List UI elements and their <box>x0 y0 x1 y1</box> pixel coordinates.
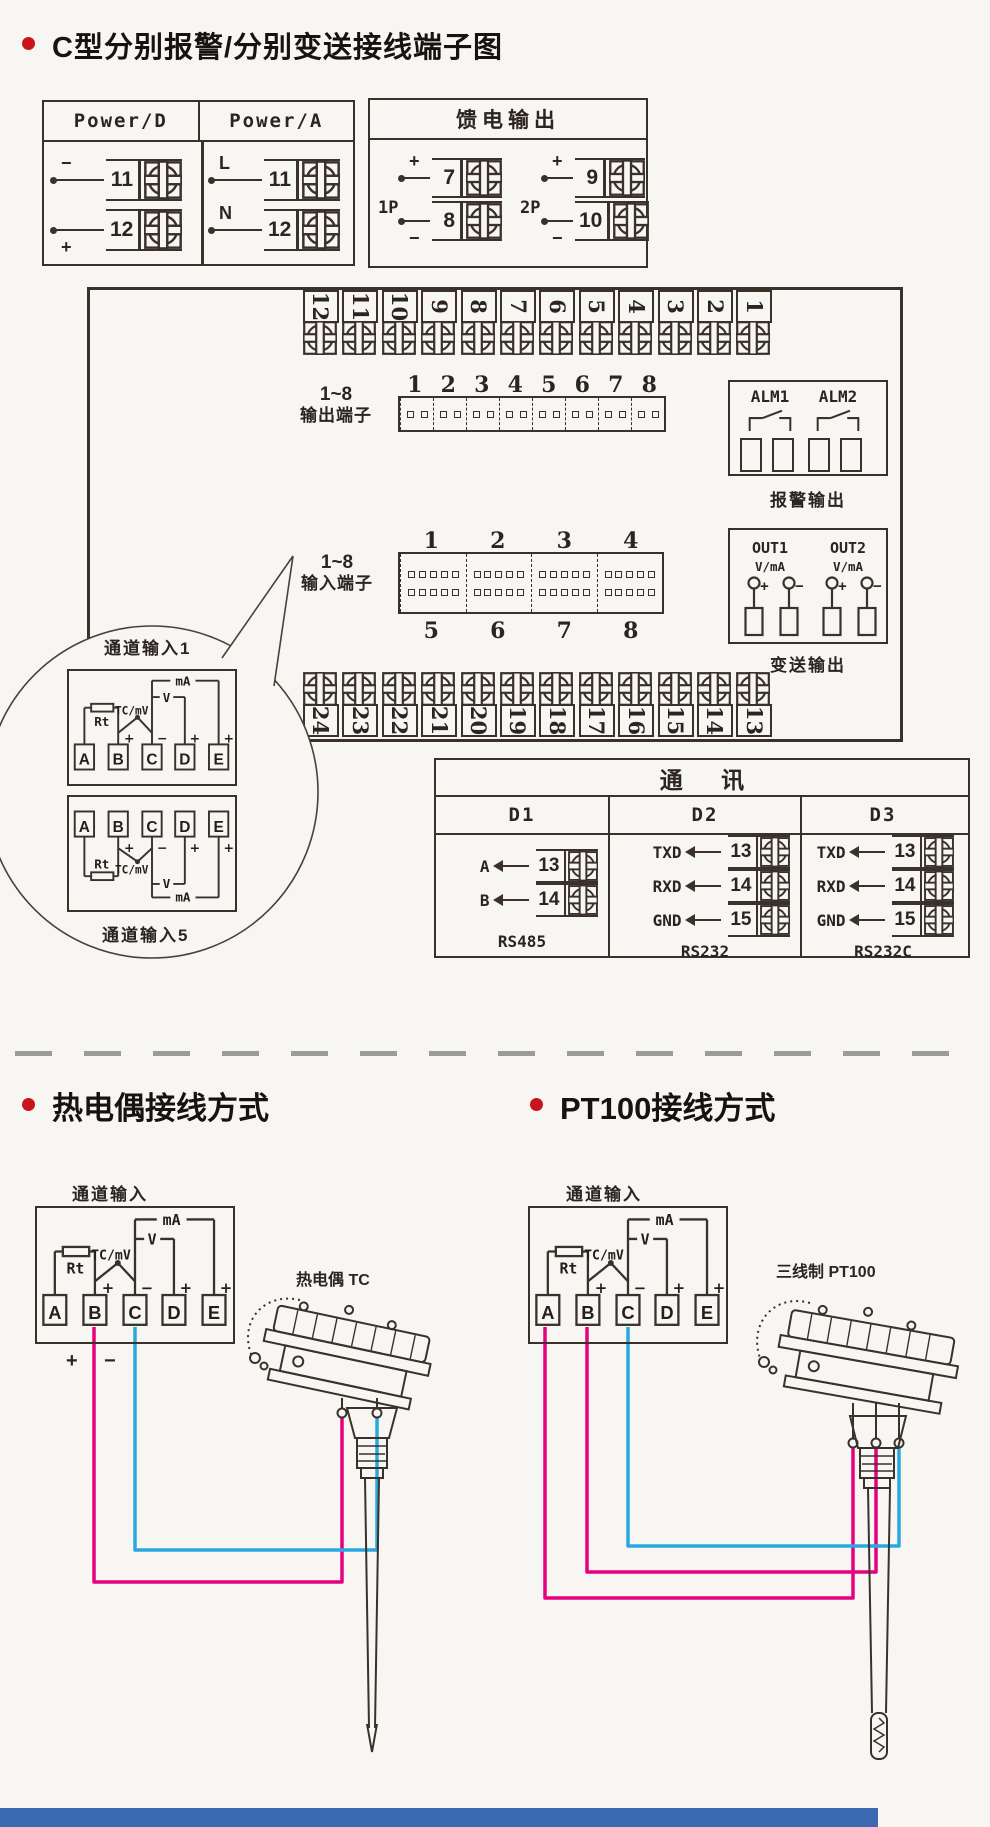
channel-input-5-label: 通道输入5 <box>102 921 189 946</box>
v-label: V <box>163 690 171 705</box>
thermocouple-section-title: 热电偶接线方式 <box>52 1083 269 1128</box>
terminal-cell: 21 <box>421 674 457 737</box>
terminal-screw-icon <box>461 672 495 706</box>
terminal-cell: 22 <box>382 674 418 737</box>
red-bullet-icon <box>530 1098 543 1111</box>
terminal-cell: 18 <box>539 674 575 737</box>
terminal-cell: 7 <box>500 290 536 355</box>
terminal-screw-icon <box>736 672 770 706</box>
terminal-screw-icon <box>618 321 652 355</box>
input-section <box>597 554 663 612</box>
output-section <box>532 398 565 430</box>
ma-label: mA <box>656 1211 674 1229</box>
feed-output-header: 馈电输出 <box>370 100 646 140</box>
svg-text:B: B <box>113 819 124 836</box>
terminal-screw-icon <box>658 672 692 706</box>
left-arrow-icon <box>851 885 885 888</box>
feed-terminal-10: − 10 <box>541 199 649 243</box>
comm-terminal-row: B 14 <box>436 883 608 917</box>
svg-text:−: − <box>634 1279 646 1297</box>
output-section <box>499 398 532 430</box>
terminal-screw-icon <box>658 321 692 355</box>
pt-channel-label: 通道输入 <box>566 1180 642 1205</box>
comm-table: 通 讯 D1 D2 D3 A 13 <box>434 758 970 958</box>
feed-terminal-7: + 7 <box>398 156 502 200</box>
svg-text:C: C <box>146 752 157 769</box>
relay-terminal <box>772 438 794 472</box>
terminal-screw-icon <box>539 321 573 355</box>
terminal-screw-icon <box>697 321 731 355</box>
svg-text:B: B <box>581 1302 594 1323</box>
terminal-screw-icon <box>736 321 770 355</box>
terminal-cell: 5 <box>579 290 615 355</box>
terminal-screw-icon <box>760 871 790 901</box>
power-d-header: Power/D <box>44 102 198 140</box>
svg-text:V: V <box>163 876 171 891</box>
pt100-probe <box>700 1258 970 1798</box>
input-section <box>466 554 532 612</box>
terminal-screw-icon <box>382 321 416 355</box>
comm-col-d3: TXD 13 RXD 14 GN <box>800 835 964 958</box>
rt-label: Rt <box>94 714 109 729</box>
input-numbers-bottom: 5678 <box>398 618 664 644</box>
svg-text:D: D <box>167 1302 180 1323</box>
left-arrow-icon <box>851 919 885 922</box>
tcmv-label: TC/mV <box>584 1249 624 1264</box>
comm-title: 通 讯 <box>436 760 968 797</box>
left-arrow-icon <box>687 919 721 922</box>
svg-text:+: + <box>190 840 201 855</box>
input-section <box>531 554 597 612</box>
terminal-cell: 4 <box>618 290 654 355</box>
ma-label: mA <box>163 1211 181 1229</box>
svg-text:D: D <box>179 819 190 836</box>
terminal-screw-icon <box>609 160 645 196</box>
svg-text:A: A <box>48 1302 61 1323</box>
svg-text:+: + <box>124 730 135 745</box>
power-a-header: Power/A <box>198 102 354 140</box>
svg-text:D: D <box>179 752 190 769</box>
tc-plus-sign: + <box>66 1350 78 1373</box>
svg-text:C: C <box>146 819 157 836</box>
channel-circuit-flipped: A B C D E + − + + Rt TC/mV V mA <box>69 797 235 910</box>
left-arrow-icon <box>495 865 529 868</box>
terminal-screw-icon <box>466 160 502 196</box>
output-connector <box>398 396 666 432</box>
terminal-screw-icon <box>697 672 731 706</box>
input-section <box>400 554 466 612</box>
svg-text:C: C <box>621 1302 634 1323</box>
pt100-section-title: PT100接线方式 <box>560 1083 775 1128</box>
comm-col-d1: A 13 B 14 RS485 <box>436 835 608 958</box>
svg-text:mA: mA <box>175 889 191 904</box>
feed-terminal-9: + 9 <box>541 156 645 200</box>
svg-text:+: + <box>223 730 234 745</box>
power-a-terminal-12: N 12 <box>208 208 340 252</box>
power-d-terminal-11: − 11 <box>50 158 182 202</box>
transmit-output-box: OUT1 OUT2 V/mA V/mA + − + − <box>728 528 888 644</box>
terminal-cell: 1 <box>736 290 772 355</box>
out2-plus-post: + <box>821 576 843 638</box>
terminal-screw-icon <box>500 321 534 355</box>
comm-header-row: D1 D2 D3 <box>436 797 968 835</box>
comm-terminal-row: RXD 14 <box>802 869 964 903</box>
output-range-label: 1~8 输出端子 <box>282 384 390 426</box>
terminal-screw-icon <box>924 871 954 901</box>
terminal-screw-icon <box>760 837 790 867</box>
terminal-screw-icon <box>579 321 613 355</box>
channel-input-5-box: A B C D E + − + + Rt TC/mV V mA <box>67 795 237 912</box>
top-terminal-strip: 12 11 10 <box>303 290 772 355</box>
svg-text:+: + <box>180 1279 192 1297</box>
relay-terminal <box>808 438 830 472</box>
svg-text:−: − <box>157 840 168 855</box>
terminal-screw-icon <box>461 321 495 355</box>
tc-channel-box: mA V Rt TC/mV + − + + A B C D E <box>35 1206 235 1344</box>
svg-text:B: B <box>88 1302 101 1323</box>
terminal-cell: 6 <box>539 290 575 355</box>
svg-text:−: − <box>141 1279 153 1297</box>
terminal-cell: 15 <box>658 674 694 737</box>
output-section <box>565 398 598 430</box>
comm-terminal-row: GND 15 <box>610 903 800 937</box>
svg-text:+: + <box>223 840 234 855</box>
terminal-screw-icon <box>144 211 182 249</box>
terminal-cell: 9 <box>421 290 457 355</box>
terminal-screw-icon <box>924 837 954 867</box>
rt-label: Rt <box>66 1259 84 1277</box>
relay-contact-icon <box>742 407 798 431</box>
left-arrow-icon <box>851 851 885 854</box>
svg-text:C: C <box>128 1302 141 1323</box>
terminal-screw-icon <box>303 321 337 355</box>
relay-terminal <box>840 438 862 472</box>
output-section <box>433 398 466 430</box>
wiring-diagram-page: C型分别报警/分别变送接线端子图 Power/D Power/A − 11 + … <box>0 0 990 1827</box>
left-arrow-icon <box>495 899 529 902</box>
terminal-screw-icon <box>924 905 954 935</box>
v-label: V <box>148 1231 157 1249</box>
output-section <box>400 398 433 430</box>
svg-text:A: A <box>541 1302 554 1323</box>
rt-label: Rt <box>559 1259 577 1277</box>
red-bullet-icon <box>22 37 35 50</box>
terminal-screw-icon <box>568 885 598 915</box>
power-d-terminal-12: + 12 <box>50 208 182 252</box>
terminal-screw-icon <box>568 851 598 881</box>
svg-text:Rt: Rt <box>94 856 109 871</box>
terminal-screw-icon <box>144 161 182 199</box>
tc-minus-sign: − <box>104 1350 116 1373</box>
terminal-screw-icon <box>618 672 652 706</box>
output-section <box>466 398 499 430</box>
output-section <box>598 398 631 430</box>
left-arrow-icon <box>687 851 721 854</box>
terminal-screw-icon <box>760 905 790 935</box>
terminal-screw-icon <box>539 672 573 706</box>
output-numbers: 12345678 <box>398 372 666 398</box>
terminal-cell: 2 <box>697 290 733 355</box>
svg-text:+: + <box>220 1279 232 1297</box>
terminal-cell: 11 <box>342 290 378 355</box>
pt-channel-box: mA V Rt TC/mV + − + + A B C D E <box>528 1206 728 1344</box>
section-divider <box>15 1051 973 1056</box>
terminal-screw-icon <box>500 672 534 706</box>
tc-channel-label: 通道输入 <box>72 1180 148 1205</box>
comm-terminal-row: TXD 13 <box>610 835 800 869</box>
terminal-screw-icon <box>579 672 613 706</box>
svg-text:A: A <box>79 819 90 836</box>
svg-text:−: − <box>157 730 168 745</box>
terminal-screw-icon <box>342 672 376 706</box>
comm-terminal-row: A 13 <box>436 849 608 883</box>
input-connector <box>398 552 664 614</box>
svg-text:B: B <box>113 752 124 769</box>
svg-text:+: + <box>190 730 201 745</box>
channel-input-1-box: mA V Rt TC/mV + − + + A B C D E <box>67 669 237 786</box>
left-arrow-icon <box>687 885 721 888</box>
thermocouple-probe <box>235 1258 455 1798</box>
terminal-cell: 16 <box>618 674 654 737</box>
footer-bar <box>0 1808 878 1827</box>
column-divider <box>201 142 204 264</box>
relay-terminal <box>740 438 762 472</box>
terminal-cell: 12 <box>303 290 339 355</box>
power-a-terminal-11: L 11 <box>208 158 340 202</box>
terminal-cell: 10 <box>382 290 418 355</box>
comm-terminal-row: TXD 13 <box>802 835 964 869</box>
feed-output-box: 馈电输出 1P + 7 − 8 2P + 9 − 10 <box>368 98 648 268</box>
channel-circuit: mA V Rt TC/mV + − + + A B C D E <box>69 671 235 784</box>
tcmv-label: TC/mV <box>91 1249 131 1264</box>
group-2p-label: 2P <box>520 198 540 218</box>
terminal-cell: 23 <box>342 674 378 737</box>
svg-text:E: E <box>213 752 223 769</box>
tcmv-label: TC/mV <box>115 704 149 717</box>
channel-circuit: mA V Rt TC/mV + − + + A B C D E <box>530 1208 726 1342</box>
svg-text:E: E <box>213 819 223 836</box>
terminal-cell: 3 <box>658 290 694 355</box>
terminal-screw-icon <box>421 321 455 355</box>
terminal-screw-icon <box>302 211 340 249</box>
terminal-screw-icon <box>382 672 416 706</box>
terminal-cell: 14 <box>697 674 733 737</box>
svg-text:D: D <box>660 1302 673 1323</box>
terminal-cell: 19 <box>500 674 536 737</box>
comm-terminal-row: RXD 14 <box>610 869 800 903</box>
svg-text:+: + <box>124 840 135 855</box>
alarm-output-box: ALM1 ALM2 <box>728 380 888 476</box>
comm-col-d2: TXD 13 RXD 14 GN <box>608 835 800 958</box>
power-terminal-box: Power/D Power/A − 11 + 12 L 11 <box>42 100 355 266</box>
svg-text:+: + <box>673 1279 685 1297</box>
out2-minus-post: − <box>856 576 878 638</box>
terminal-cell: 20 <box>461 674 497 737</box>
channel-circuit: mA V Rt TC/mV + − + + A B C D E <box>37 1208 233 1342</box>
terminal-cell: 17 <box>579 674 615 737</box>
red-bullet-icon <box>22 1098 35 1111</box>
v-label: V <box>641 1231 650 1249</box>
terminal-cell: 8 <box>461 290 497 355</box>
output-section <box>631 398 664 430</box>
svg-text:A: A <box>79 752 90 769</box>
ma-label: mA <box>175 673 191 688</box>
terminal-screw-icon <box>342 321 376 355</box>
svg-text:TC/mV: TC/mV <box>115 863 149 876</box>
terminal-screw-icon <box>421 672 455 706</box>
group-1p-label: 1P <box>378 198 398 218</box>
svg-text:+: + <box>102 1279 114 1297</box>
terminal-cell: 13 <box>736 674 772 737</box>
terminal-screw-icon <box>466 203 502 239</box>
svg-text:E: E <box>208 1302 220 1323</box>
svg-text:+: + <box>595 1279 607 1297</box>
input-numbers-top: 1234 <box>398 528 664 554</box>
relay-contact-icon <box>810 407 866 431</box>
terminal-screw-icon <box>302 161 340 199</box>
terminal-screw-icon <box>613 203 649 239</box>
channel-input-1-label: 通道输入1 <box>104 634 191 659</box>
bottom-terminal-strip: 24 23 22 <box>303 674 772 737</box>
page-title: C型分别报警/分别变送接线端子图 <box>52 24 503 66</box>
comm-terminal-row: GND 15 <box>802 903 964 937</box>
alarm-caption: 报警输出 <box>728 486 888 511</box>
feed-terminal-8: − 8 <box>398 199 502 243</box>
out1-minus-post: − <box>778 576 800 638</box>
out1-plus-post: + <box>743 576 765 638</box>
